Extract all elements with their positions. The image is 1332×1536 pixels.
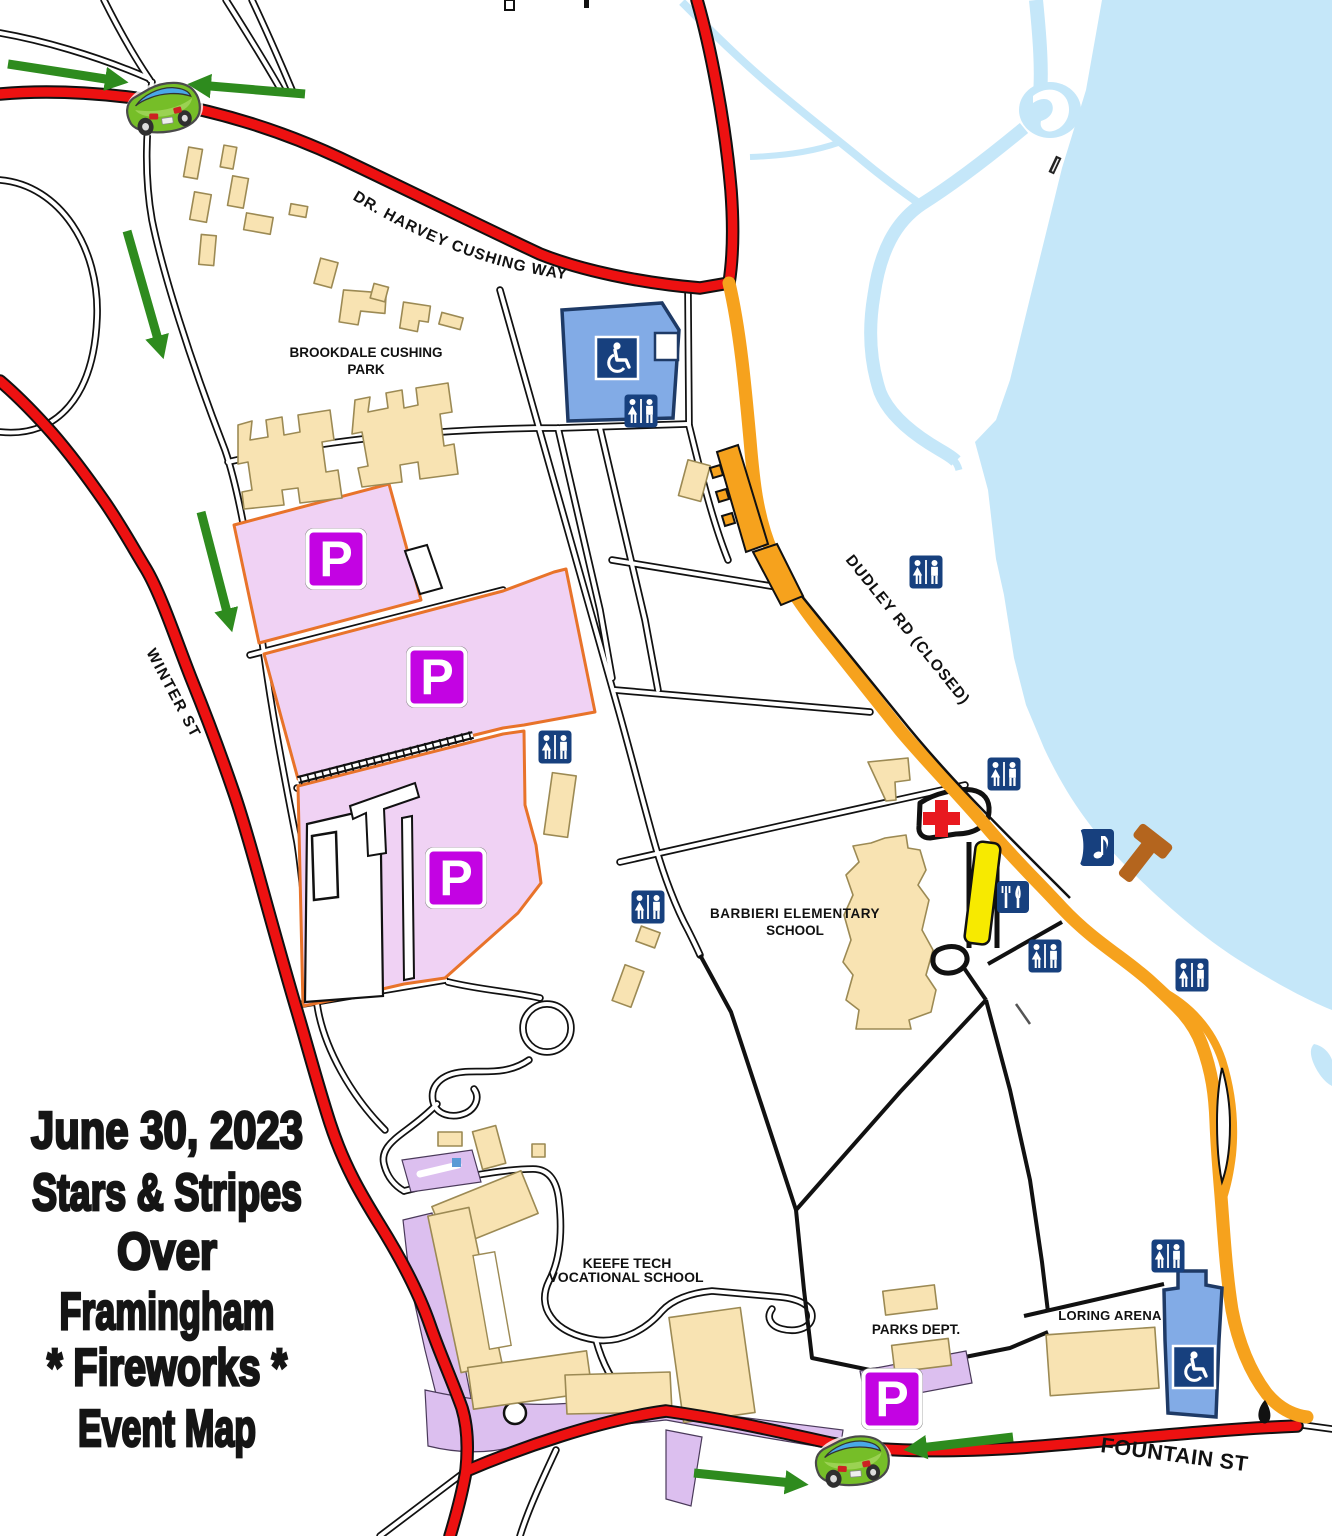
svg-text:June 30, 2023: June 30, 2023 (31, 1102, 303, 1160)
svg-text:* Fireworks *: * Fireworks * (47, 1339, 288, 1397)
svg-text:VOCATIONAL SCHOOL: VOCATIONAL SCHOOL (548, 1269, 703, 1285)
svg-text:PARKS DEPT.: PARKS DEPT. (872, 1322, 960, 1337)
svg-text:BROOKDALE CUSHING: BROOKDALE CUSHING (289, 345, 442, 360)
svg-text:Event Map: Event Map (78, 1400, 256, 1458)
svg-text:Framingham: Framingham (60, 1283, 275, 1341)
svg-text:LORING ARENA: LORING ARENA (1058, 1308, 1162, 1323)
svg-text:PARK: PARK (347, 362, 385, 377)
svg-text:Stars & Stripes: Stars & Stripes (32, 1164, 302, 1222)
svg-text:SCHOOL: SCHOOL (766, 923, 824, 938)
svg-text:Over: Over (117, 1223, 217, 1281)
svg-text:BARBIERI ELEMENTARY: BARBIERI ELEMENTARY (710, 906, 880, 921)
